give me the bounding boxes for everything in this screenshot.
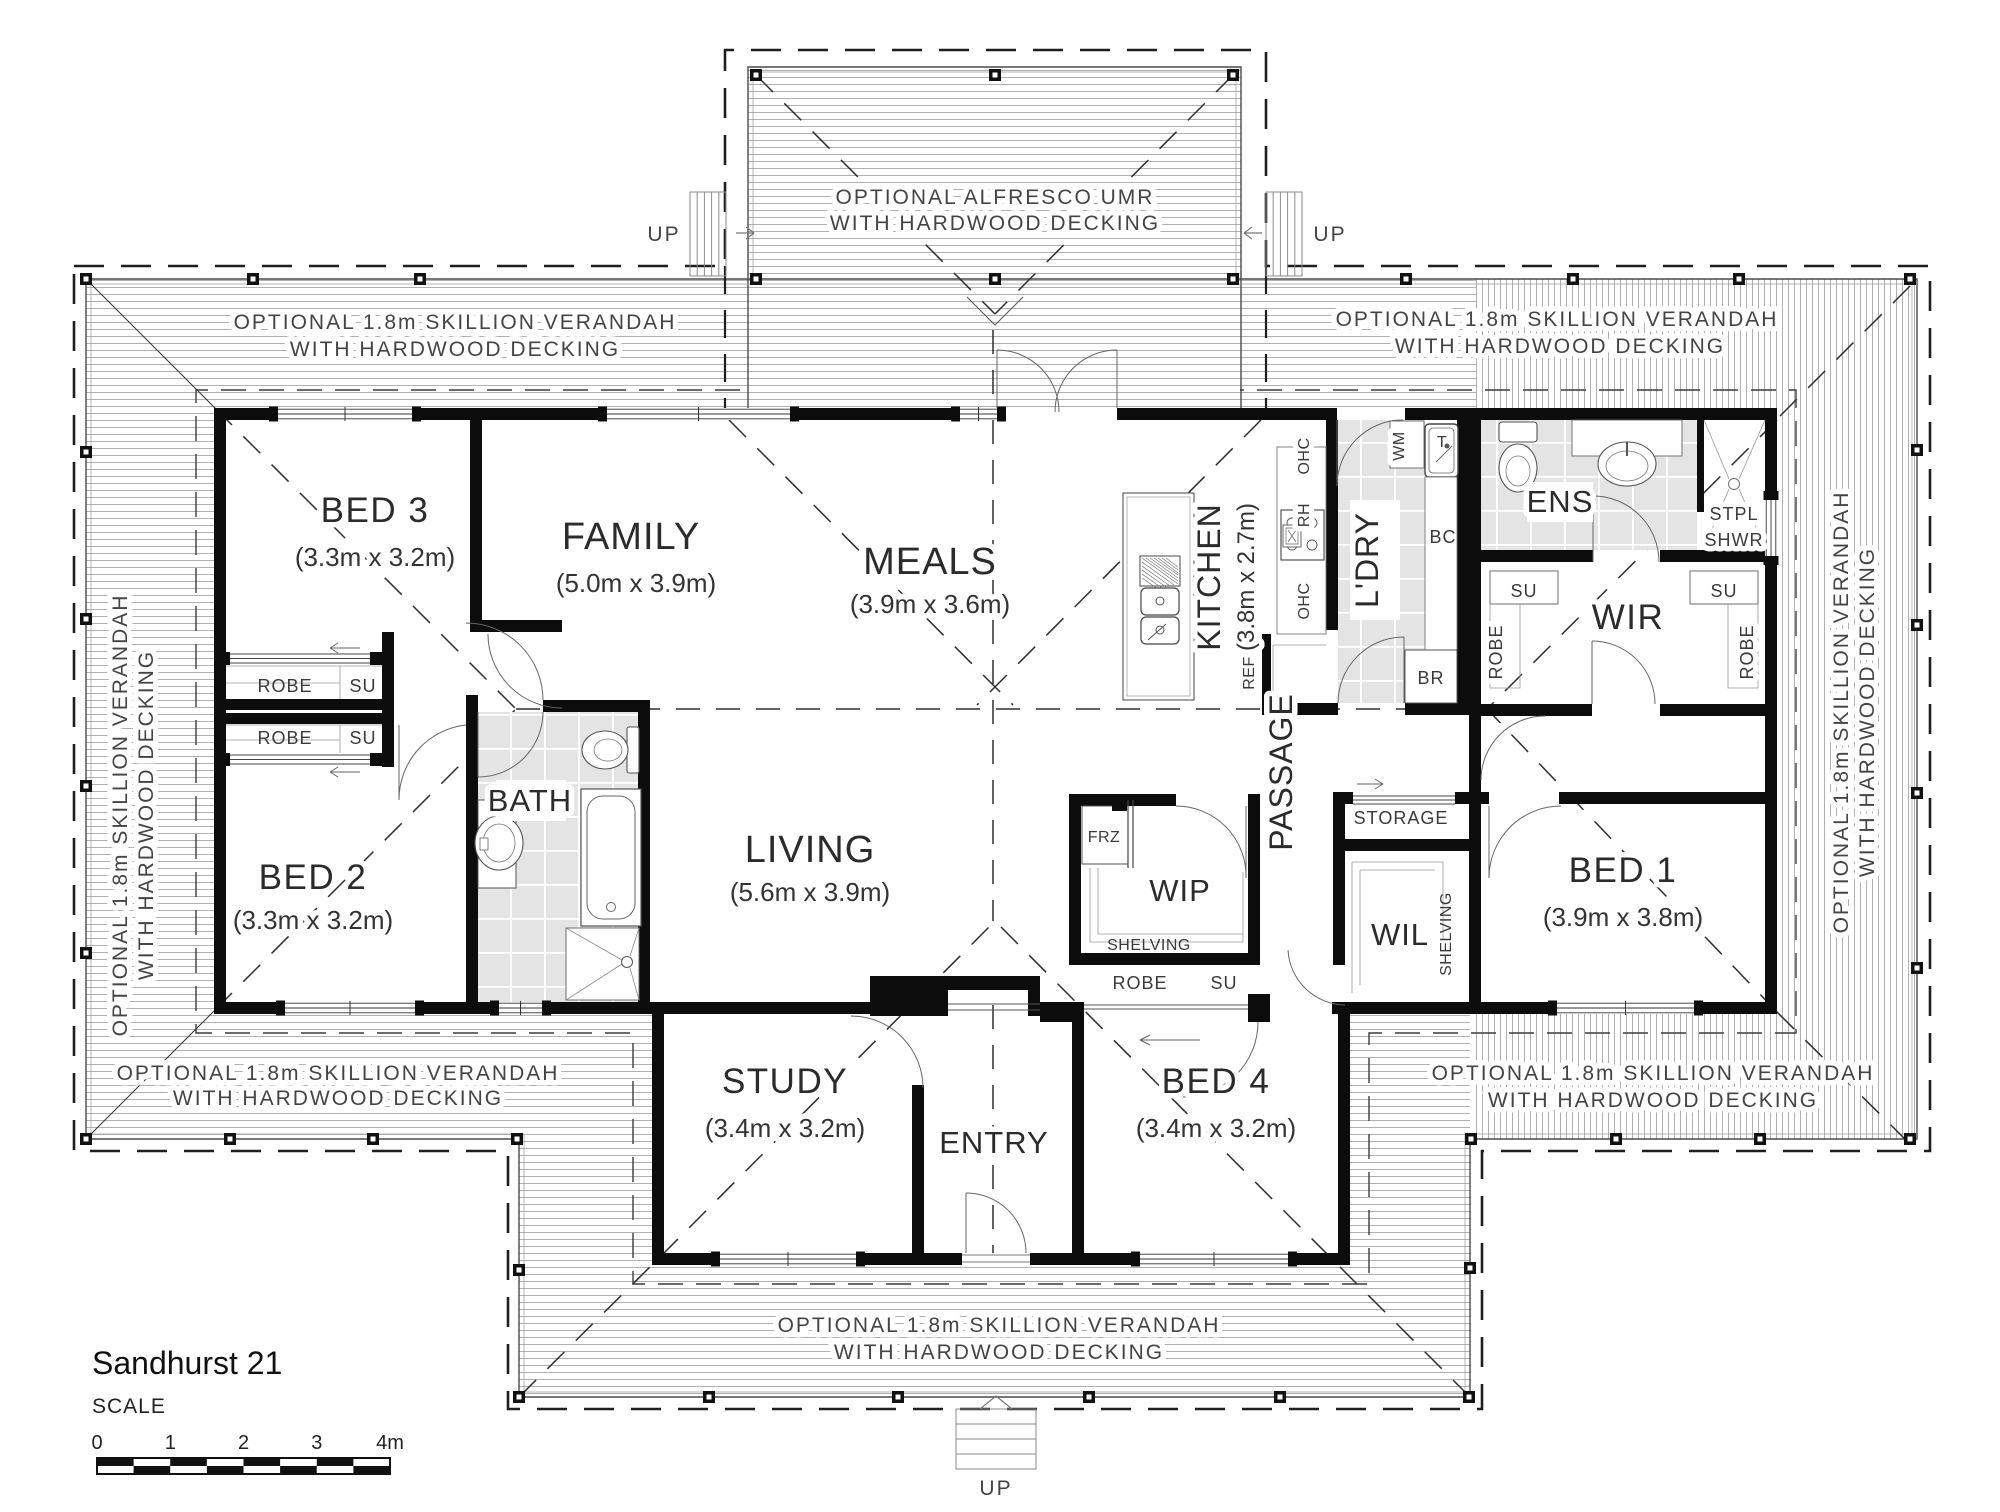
- svg-text:FAMILY: FAMILY: [562, 516, 700, 558]
- svg-text:STUDY: STUDY: [722, 1062, 848, 1101]
- svg-text:UP: UP: [647, 223, 680, 246]
- svg-text:SHELVING: SHELVING: [1438, 892, 1455, 976]
- svg-text:SCALE: SCALE: [92, 1395, 166, 1418]
- svg-text:OPTIONAL 1.8m SKILLION VERANDA: OPTIONAL 1.8m SKILLION VERANDAH: [1432, 1062, 1875, 1085]
- svg-text:SU: SU: [349, 676, 376, 696]
- svg-text:OPTIONAL 1.8m SKILLION VERANDA: OPTIONAL 1.8m SKILLION VERANDAH: [778, 1314, 1221, 1337]
- svg-text:(5.6m x 3.9m): (5.6m x 3.9m): [730, 877, 890, 907]
- svg-text:WITH HARDWOOD DECKING: WITH HARDWOOD DECKING: [830, 212, 1160, 235]
- svg-text:BED 2: BED 2: [259, 858, 368, 897]
- svg-text:2: 2: [238, 1432, 249, 1454]
- svg-text:FRZ: FRZ: [1088, 829, 1121, 846]
- svg-text:KITCHEN: KITCHEN: [1191, 503, 1227, 650]
- svg-text:STPL: STPL: [1709, 504, 1758, 524]
- svg-text:ROBE: ROBE: [1112, 973, 1167, 993]
- svg-text:WIP: WIP: [1149, 873, 1211, 908]
- svg-text:(3.9m x 3.8m): (3.9m x 3.8m): [1543, 902, 1703, 932]
- svg-text:WM: WM: [1391, 431, 1408, 460]
- svg-text:OHC: OHC: [1296, 437, 1313, 474]
- svg-text:WIR: WIR: [1592, 598, 1665, 637]
- svg-text:BED 1: BED 1: [1569, 851, 1678, 890]
- svg-text:(3.9m x 3.6m): (3.9m x 3.6m): [850, 589, 1010, 619]
- svg-text:(3.8m x 2.7m): (3.8m x 2.7m): [1233, 503, 1260, 651]
- svg-text:WIL: WIL: [1371, 917, 1429, 952]
- svg-text:1: 1: [165, 1432, 176, 1454]
- svg-text:WITH HARDWOOD DECKING: WITH HARDWOOD DECKING: [135, 650, 158, 980]
- svg-text:OPTIONAL 1.8m SKILLION VERANDA: OPTIONAL 1.8m SKILLION VERANDAH: [117, 1062, 560, 1085]
- svg-text:WITH HARDWOOD DECKING: WITH HARDWOOD DECKING: [834, 1341, 1164, 1364]
- svg-text:WITH HARDWOOD DECKING: WITH HARDWOOD DECKING: [173, 1087, 503, 1110]
- svg-text:OPTIONAL 1.8m SKILLION VERANDA: OPTIONAL 1.8m SKILLION VERANDAH: [234, 311, 677, 334]
- svg-text:WITH HARDWOOD DECKING: WITH HARDWOOD DECKING: [1395, 335, 1725, 358]
- svg-text:SU: SU: [1210, 973, 1237, 993]
- svg-text:SHWR: SHWR: [1705, 530, 1764, 550]
- svg-text:OPTIONAL ALFRESCO UMR: OPTIONAL ALFRESCO UMR: [836, 186, 1155, 209]
- svg-text:ENTRY: ENTRY: [939, 1125, 1049, 1160]
- svg-text:BATH: BATH: [488, 783, 572, 818]
- svg-text:(3.3m x 3.2m): (3.3m x 3.2m): [295, 542, 455, 572]
- svg-text:UP: UP: [979, 1477, 1012, 1500]
- svg-text:ENS: ENS: [1527, 484, 1594, 519]
- svg-text:UP: UP: [1313, 223, 1346, 246]
- svg-text:PASSAGE: PASSAGE: [1263, 693, 1299, 851]
- svg-text:(5.0m x 3.9m): (5.0m x 3.9m): [556, 568, 716, 598]
- svg-text:Sandhurst 21: Sandhurst 21: [92, 1345, 282, 1381]
- svg-text:T: T: [1437, 434, 1447, 451]
- svg-text:ROBE: ROBE: [257, 728, 312, 748]
- svg-text:REF: REF: [1241, 656, 1258, 690]
- svg-text:WITH HARDWOOD DECKING: WITH HARDWOOD DECKING: [1856, 547, 1879, 877]
- svg-text:OPTIONAL 1.8m SKILLION VERANDA: OPTIONAL 1.8m SKILLION VERANDAH: [1336, 308, 1779, 331]
- svg-text:ROBE: ROBE: [1737, 624, 1757, 679]
- svg-text:MEALS: MEALS: [863, 541, 997, 583]
- svg-text:BED 4: BED 4: [1162, 1062, 1271, 1101]
- svg-text:ROBE: ROBE: [257, 676, 312, 696]
- svg-text:BC: BC: [1429, 527, 1456, 547]
- svg-text:STORAGE: STORAGE: [1354, 808, 1449, 828]
- svg-text:SHELVING: SHELVING: [1107, 937, 1191, 954]
- svg-text:WITH HARDWOOD DECKING: WITH HARDWOOD DECKING: [290, 338, 620, 361]
- svg-text:(3.4m x 3.2m): (3.4m x 3.2m): [705, 1113, 865, 1143]
- svg-text:SU: SU: [1510, 581, 1537, 601]
- svg-text:OPTIONAL 1.8m SKILLION VERANDA: OPTIONAL 1.8m SKILLION VERANDAH: [109, 594, 132, 1037]
- svg-text:3: 3: [311, 1432, 322, 1454]
- svg-text:RH: RH: [1296, 503, 1313, 527]
- svg-text:OHC: OHC: [1296, 582, 1313, 619]
- svg-text:SU: SU: [1710, 581, 1737, 601]
- svg-text:4m: 4m: [376, 1432, 404, 1454]
- svg-text:WITH HARDWOOD DECKING: WITH HARDWOOD DECKING: [1488, 1089, 1818, 1112]
- svg-text:BR: BR: [1417, 668, 1444, 688]
- svg-text:BED 3: BED 3: [321, 491, 430, 530]
- svg-text:(3.4m x 3.2m): (3.4m x 3.2m): [1136, 1113, 1296, 1143]
- svg-text:0: 0: [91, 1432, 102, 1454]
- svg-text:SU: SU: [349, 728, 376, 748]
- svg-text:OPTIONAL 1.8m SKILLION VERANDA: OPTIONAL 1.8m SKILLION VERANDAH: [1830, 491, 1853, 934]
- svg-text:L'DRY: L'DRY: [1349, 512, 1385, 608]
- svg-text:(3.3m x 3.2m): (3.3m x 3.2m): [233, 905, 393, 935]
- svg-text:ROBE: ROBE: [1486, 624, 1506, 679]
- svg-text:LIVING: LIVING: [745, 829, 876, 871]
